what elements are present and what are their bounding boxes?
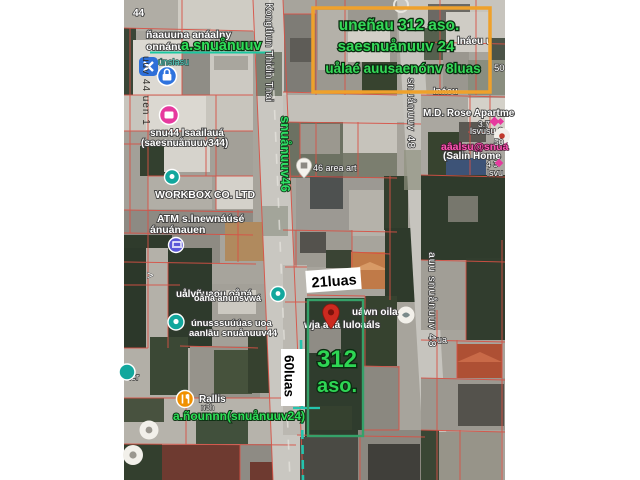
svg-text:50: 50	[494, 137, 504, 147]
svg-text:lnáeu u: lnáeu u	[457, 36, 492, 47]
svg-text:WORKBOX CO. LTD: WORKBOX CO. LTD	[155, 189, 256, 201]
svg-text:312: 312	[317, 346, 357, 373]
svg-text:uålaé auusaenónv 8luas: uålaé auusaenónv 8luas	[325, 61, 480, 76]
svg-text:uáwn oila: uáwn oila	[352, 307, 398, 318]
svg-text:46 area art: 46 area art	[313, 163, 357, 173]
svg-text:auu snuånuuv 48: auu snuånuuv 48	[426, 252, 438, 348]
svg-text:44: 44	[133, 8, 145, 19]
svg-text:oåná anúnsvwá: oåná anúnsvwá	[194, 293, 262, 303]
svg-text:snuånuuv46: snuånuuv46	[278, 116, 293, 192]
svg-text:aso.: aso.	[317, 375, 357, 397]
svg-text:a.snuånuuv: a.snuånuuv	[181, 38, 262, 54]
svg-text:aanlãu snuånuuv44: aanlãu snuånuuv44	[189, 328, 278, 339]
svg-text:ua: ua	[437, 335, 447, 345]
svg-text:M.D. Rose Apartme: M.D. Rose Apartme	[423, 108, 515, 119]
svg-text:a.ñounnn(snuånuuv24): a.ñounnn(snuånuuv24)	[173, 409, 305, 423]
svg-text:Kongthun Thidin Thai: Kongthun Thidin Thai	[263, 3, 274, 102]
svg-text:50: 50	[494, 63, 505, 74]
svg-text:saesnuånuuv 24: saesnuånuuv 24	[338, 38, 455, 55]
svg-text:uuv 44 uen 1: uuv 44 uen 1	[140, 56, 151, 126]
svg-text:(saesnuånuuv344): (saesnuånuuv344)	[141, 137, 228, 149]
svg-text:ánuánauen: ánuánauen	[150, 224, 205, 236]
svg-text:uneñau 312 aso.: uneñau 312 aso.	[339, 17, 460, 34]
svg-text:>: >	[147, 270, 153, 282]
svg-text:21luas: 21luas	[311, 272, 357, 291]
svg-text:wja auá luloaáls: wja auá luloaáls	[303, 320, 381, 331]
svg-text:snuånuuv 48: snuånuuv 48	[405, 78, 417, 149]
svg-text:lsvu: lsvu	[487, 168, 503, 178]
svg-text:60luas: 60luas	[282, 355, 297, 397]
svg-text:onnánu: onnánu	[146, 41, 184, 53]
